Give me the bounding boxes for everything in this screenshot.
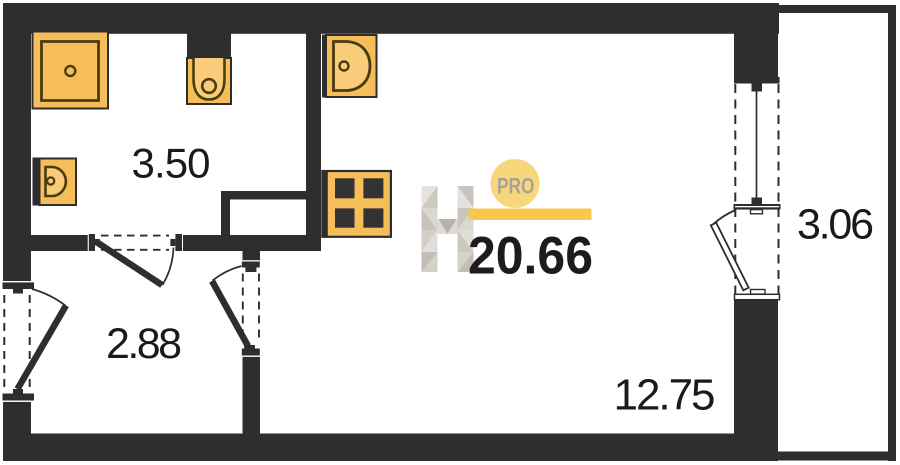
svg-text:20.66: 20.66 (468, 227, 593, 286)
svg-text:3.06: 3.06 (797, 200, 874, 248)
svg-text:3.50: 3.50 (132, 139, 211, 186)
svg-text:2.88: 2.88 (106, 320, 182, 368)
svg-text:12.75: 12.75 (614, 371, 716, 420)
svg-text:PRO: PRO (497, 174, 535, 199)
